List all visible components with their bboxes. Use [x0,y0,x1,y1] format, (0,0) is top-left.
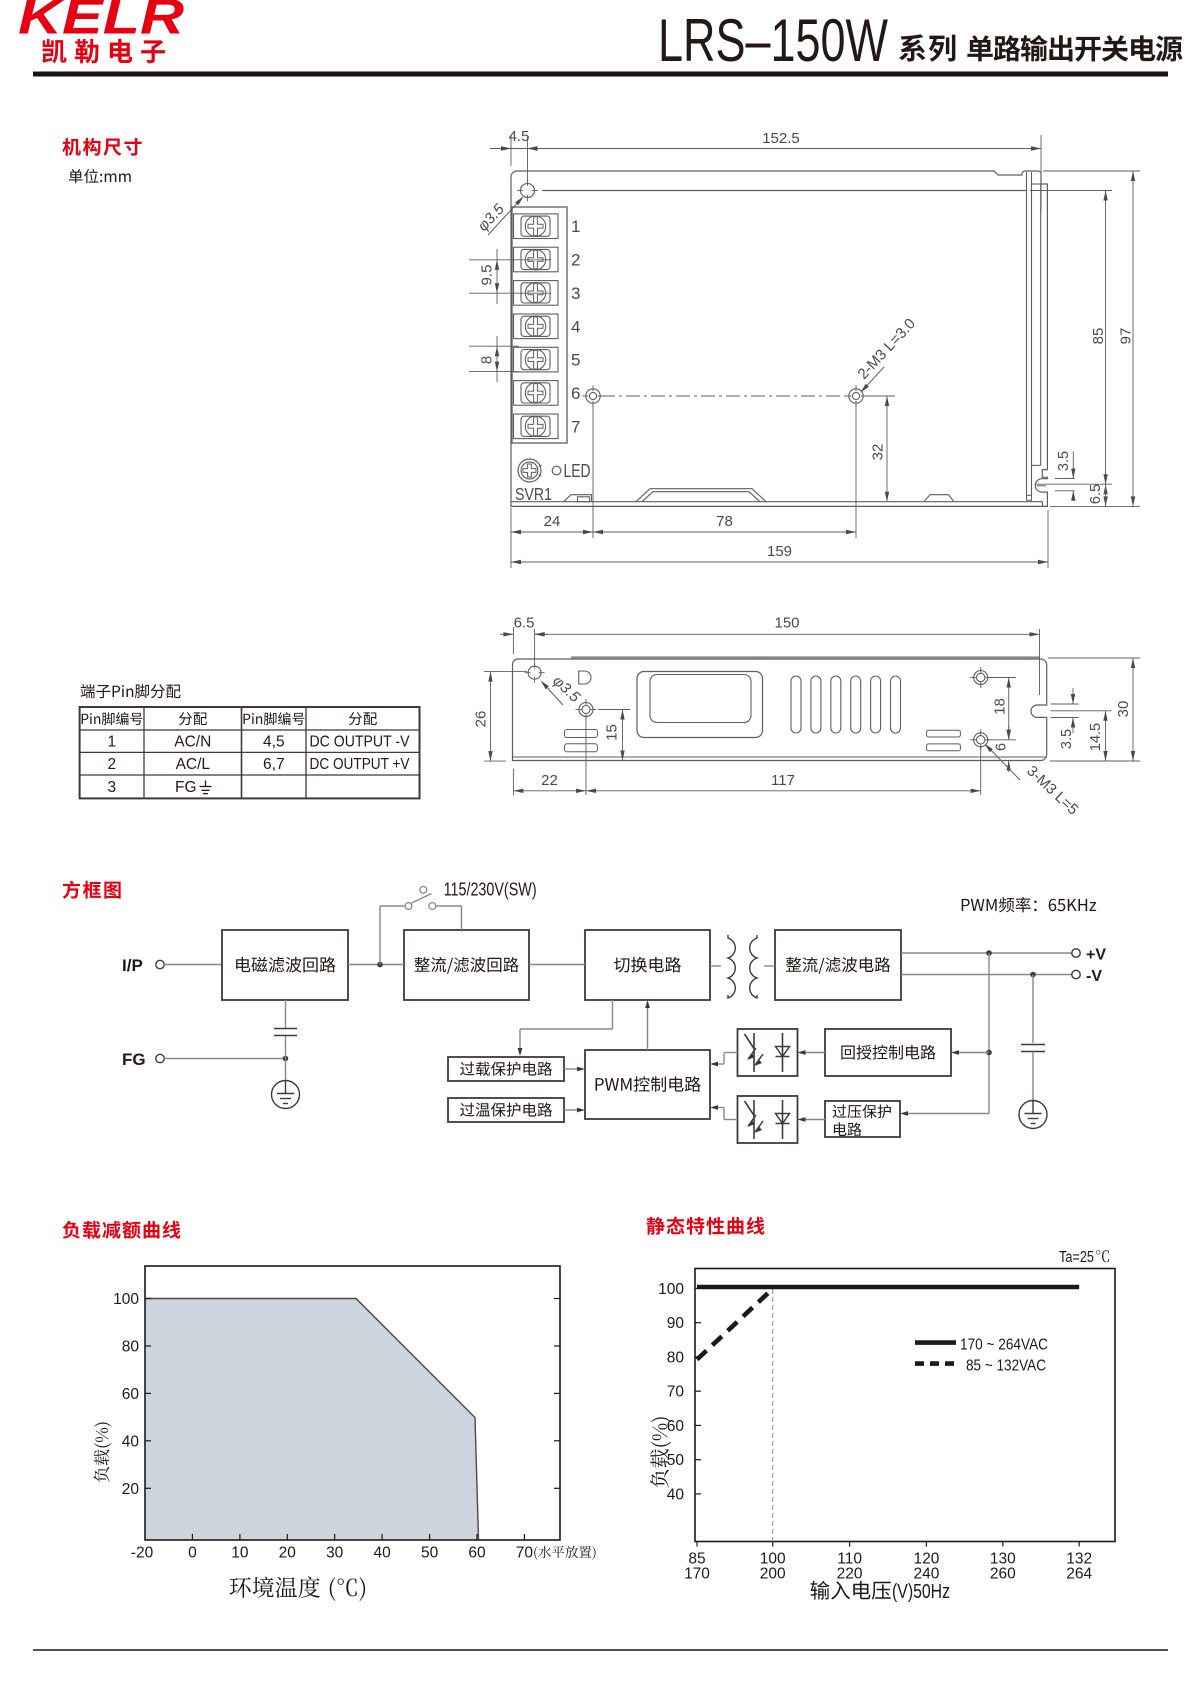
svg-text:4.5: 4.5 [509,128,530,145]
svg-text:220: 220 [837,1566,863,1583]
svg-text:90: 90 [667,1315,685,1332]
svg-text:6.5: 6.5 [1088,484,1104,504]
svg-text:6: 6 [994,743,1010,751]
svg-text:260: 260 [990,1566,1016,1583]
svg-text:50: 50 [667,1452,685,1469]
svg-text:1: 1 [107,734,116,751]
svg-text:32: 32 [870,444,887,461]
svg-text:I/P: I/P [122,956,143,975]
svg-text:FG: FG [175,779,197,796]
svg-text:18: 18 [992,698,1009,715]
svg-text:30: 30 [326,1545,344,1562]
svg-text:DC OUTPUT -V: DC OUTPUT -V [310,734,411,751]
svg-text:LED: LED [564,461,591,481]
svg-text:LRS–150W: LRS–150W [658,7,888,74]
svg-text:4: 4 [571,317,580,336]
svg-text:3: 3 [571,284,580,303]
svg-text:-V: -V [1086,968,1102,985]
svg-text:SVR1: SVR1 [515,484,552,504]
svg-text:6.5: 6.5 [514,615,535,632]
svg-text:170 ~ 264VAC: 170 ~ 264VAC [960,1337,1048,1354]
svg-text:152.5: 152.5 [762,130,800,147]
svg-text:85 ~ 132VAC: 85 ~ 132VAC [966,1358,1046,1375]
svg-text:-20: -20 [131,1545,154,1562]
svg-text:40: 40 [667,1486,685,1503]
svg-text:40: 40 [373,1545,391,1562]
svg-text:2: 2 [107,756,116,773]
svg-text:97: 97 [1118,328,1135,345]
svg-text:6,7: 6,7 [263,756,285,773]
svg-text:KELR: KELR [18,0,184,45]
svg-text:240: 240 [913,1566,939,1583]
svg-text:Ta=25: Ta=25 [1059,1249,1094,1266]
svg-text:150: 150 [774,615,799,632]
svg-text:1: 1 [571,217,580,236]
svg-text:5: 5 [571,351,580,370]
svg-text:70: 70 [516,1545,534,1562]
svg-text:170: 170 [684,1566,710,1583]
svg-text:3.5: 3.5 [1059,729,1075,749]
svg-text:78: 78 [716,513,733,530]
svg-text:10: 10 [231,1545,249,1562]
svg-text:AC/N: AC/N [174,734,211,751]
svg-text:FG: FG [122,1050,146,1069]
svg-text:22: 22 [541,772,558,789]
svg-text:15: 15 [604,724,621,741]
svg-text:115/230V(SW): 115/230V(SW) [444,879,537,900]
svg-text:100: 100 [113,1291,139,1308]
svg-text:6: 6 [571,384,580,403]
svg-text:85: 85 [1090,328,1107,345]
svg-text:4,5: 4,5 [263,734,285,751]
svg-text:AC/L: AC/L [176,756,211,773]
svg-text:9.5: 9.5 [479,265,496,286]
svg-text:20: 20 [122,1481,140,1498]
svg-text:7: 7 [571,417,580,436]
svg-text:80: 80 [122,1339,140,1356]
svg-text:200: 200 [760,1566,786,1583]
svg-text:0: 0 [188,1545,197,1562]
svg-text:30: 30 [1115,701,1132,718]
svg-text:20: 20 [279,1545,297,1562]
svg-text:40: 40 [122,1433,140,1450]
svg-text:117: 117 [771,772,795,789]
svg-text:60: 60 [122,1386,140,1403]
svg-text:26: 26 [473,711,490,728]
svg-text:50: 50 [421,1545,439,1562]
svg-text:3: 3 [107,779,116,796]
svg-text:264: 264 [1066,1566,1092,1583]
svg-text:60: 60 [468,1545,486,1562]
svg-text:159: 159 [767,543,792,560]
svg-text:80: 80 [667,1349,685,1366]
svg-text:DC OUTPUT +V: DC OUTPUT +V [310,756,411,773]
svg-text:+V: +V [1086,947,1106,964]
svg-text:14.5: 14.5 [1088,723,1104,751]
svg-text:3.5: 3.5 [1056,451,1072,471]
svg-text:24: 24 [544,513,561,530]
svg-text:2: 2 [571,251,580,270]
svg-text:70: 70 [667,1384,685,1401]
svg-text:8: 8 [479,356,496,364]
svg-text:100: 100 [658,1281,684,1298]
svg-text:(V)50Hz: (V)50Hz [892,1581,950,1603]
